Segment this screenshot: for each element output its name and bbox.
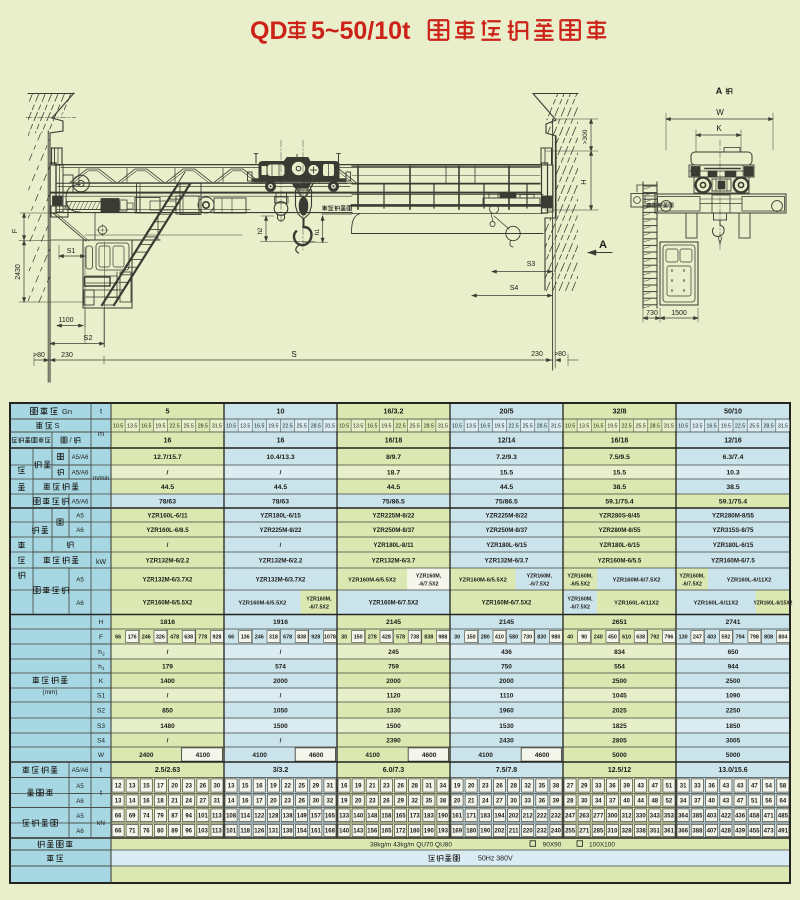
svg-text:31: 31 xyxy=(425,784,432,790)
svg-text:103: 103 xyxy=(198,829,209,835)
svg-text:161: 161 xyxy=(311,829,322,835)
svg-text:50/10: 50/10 xyxy=(724,407,742,416)
svg-text:н: н xyxy=(671,268,674,274)
svg-text:428: 428 xyxy=(721,829,732,835)
svg-text:16: 16 xyxy=(341,784,348,790)
svg-text:161: 161 xyxy=(452,814,463,820)
svg-text:37: 37 xyxy=(694,799,701,805)
svg-text:31.5: 31.5 xyxy=(551,424,561,430)
svg-text:278: 278 xyxy=(368,635,377,641)
svg-text:21: 21 xyxy=(468,799,475,805)
svg-text:246: 246 xyxy=(255,635,264,641)
svg-text:16/18: 16/18 xyxy=(385,438,403,445)
svg-text:35: 35 xyxy=(425,799,432,805)
svg-text:YZR160L-6/8.5: YZR160L-6/8.5 xyxy=(146,527,189,534)
svg-text:16.5: 16.5 xyxy=(593,424,603,430)
svg-text:S1: S1 xyxy=(67,248,76,255)
svg-text:403: 403 xyxy=(707,814,718,820)
svg-text:114: 114 xyxy=(240,814,250,820)
svg-text:34: 34 xyxy=(595,799,602,805)
svg-text:2805: 2805 xyxy=(612,738,627,745)
svg-text:36: 36 xyxy=(538,799,545,805)
svg-text:A5/A6: A5/A6 xyxy=(72,499,89,506)
svg-text:S2: S2 xyxy=(83,333,92,342)
svg-text:485: 485 xyxy=(778,814,789,820)
svg-text:/: / xyxy=(167,693,169,700)
svg-text:23: 23 xyxy=(284,799,291,805)
svg-text:988: 988 xyxy=(438,635,447,641)
svg-text:32/8: 32/8 xyxy=(613,407,627,416)
svg-text:79: 79 xyxy=(157,814,164,820)
svg-text:90: 90 xyxy=(581,635,587,641)
svg-text:478: 478 xyxy=(170,635,179,641)
svg-text:50Hz 380V: 50Hz 380V xyxy=(478,856,513,863)
svg-text:S3: S3 xyxy=(97,723,105,730)
svg-text:75/86.5: 75/86.5 xyxy=(495,499,518,506)
svg-text:2.5/2.63: 2.5/2.63 xyxy=(155,767,180,774)
svg-text:h2: h2 xyxy=(258,227,264,234)
svg-text:YZR132M-6/3.7: YZR132M-6/3.7 xyxy=(372,557,416,564)
svg-text:59.1/75.4: 59.1/75.4 xyxy=(719,499,748,506)
svg-text:66: 66 xyxy=(228,635,234,641)
svg-text:н: н xyxy=(671,288,674,294)
svg-text:31.5: 31.5 xyxy=(438,424,448,430)
svg-text:19.5: 19.5 xyxy=(494,424,504,430)
svg-text:3/3.2: 3/3.2 xyxy=(273,767,289,774)
svg-text:28.5: 28.5 xyxy=(764,424,774,430)
svg-text:7.2/9.3: 7.2/9.3 xyxy=(496,454,517,461)
svg-text:328: 328 xyxy=(622,829,633,835)
svg-text:578: 578 xyxy=(396,635,405,641)
svg-text:YZR160L-6/11X2: YZR160L-6/11X2 xyxy=(694,601,739,607)
svg-text:19.5: 19.5 xyxy=(268,424,278,430)
svg-text:1480: 1480 xyxy=(160,723,175,730)
svg-text:13.5: 13.5 xyxy=(579,424,589,430)
svg-text:16/3.2: 16/3.2 xyxy=(384,407,404,416)
svg-text:15: 15 xyxy=(143,784,150,790)
svg-text:28.5: 28.5 xyxy=(198,424,208,430)
svg-text:928: 928 xyxy=(311,635,320,641)
svg-text:2390: 2390 xyxy=(386,738,401,745)
svg-text:н: н xyxy=(683,278,686,284)
svg-text:>80: >80 xyxy=(33,352,45,359)
svg-text:/: / xyxy=(280,693,282,700)
svg-text:16: 16 xyxy=(164,438,172,445)
svg-text:30: 30 xyxy=(454,635,460,641)
svg-text:YZR180L-6/15: YZR180L-6/15 xyxy=(260,512,301,519)
svg-text:A: A xyxy=(599,239,607,251)
svg-text:28: 28 xyxy=(510,784,517,790)
svg-text:47: 47 xyxy=(751,784,758,790)
svg-text:15.5: 15.5 xyxy=(500,470,513,477)
svg-text:13: 13 xyxy=(228,784,235,790)
svg-text:190: 190 xyxy=(480,829,491,835)
svg-text:592: 592 xyxy=(721,635,730,641)
svg-text:W: W xyxy=(716,108,724,117)
svg-text:22.5: 22.5 xyxy=(622,424,632,430)
svg-text:678: 678 xyxy=(283,635,292,641)
svg-text:F: F xyxy=(10,228,19,233)
svg-text:40: 40 xyxy=(708,799,715,805)
svg-text:22.5: 22.5 xyxy=(735,424,745,430)
svg-text:87: 87 xyxy=(171,814,178,820)
svg-text:A6: A6 xyxy=(76,527,84,534)
svg-text:A5/A6: A5/A6 xyxy=(72,767,89,774)
svg-text:158: 158 xyxy=(381,814,392,820)
svg-text:16.5: 16.5 xyxy=(254,424,264,430)
svg-text:t: t xyxy=(100,767,102,774)
svg-text:A6: A6 xyxy=(76,828,84,835)
svg-text:40: 40 xyxy=(567,635,573,641)
svg-text:1045: 1045 xyxy=(612,693,627,700)
svg-text:183: 183 xyxy=(480,814,491,820)
svg-text:26: 26 xyxy=(298,799,305,805)
svg-text:580: 580 xyxy=(509,635,518,641)
svg-text:410: 410 xyxy=(495,635,504,641)
svg-text:10.5: 10.5 xyxy=(452,424,462,430)
svg-text:1850: 1850 xyxy=(726,723,741,730)
svg-text:t: t xyxy=(100,790,102,797)
svg-text:51: 51 xyxy=(751,799,758,805)
svg-text:10.5: 10.5 xyxy=(565,424,575,430)
svg-text:202: 202 xyxy=(509,814,520,820)
svg-text:10.5: 10.5 xyxy=(226,424,236,430)
svg-text:-6/7.5X2: -6/7.5X2 xyxy=(418,581,438,587)
svg-text:1100: 1100 xyxy=(58,317,73,324)
svg-text:439: 439 xyxy=(735,829,746,835)
svg-text:220: 220 xyxy=(523,829,534,835)
svg-text:138: 138 xyxy=(283,829,294,835)
svg-text:38: 38 xyxy=(553,784,560,790)
svg-text:169: 169 xyxy=(452,829,463,835)
svg-text:23: 23 xyxy=(185,784,192,790)
svg-text:YZR160M-6/5.5X2: YZR160M-6/5.5X2 xyxy=(459,577,507,583)
svg-text:28.5: 28.5 xyxy=(537,424,547,430)
svg-text:388: 388 xyxy=(692,829,703,835)
svg-text:1530: 1530 xyxy=(499,723,514,730)
svg-text:A5: A5 xyxy=(76,813,84,820)
svg-text:25.5: 25.5 xyxy=(523,424,533,430)
svg-text:38.5: 38.5 xyxy=(726,484,739,491)
svg-text:31: 31 xyxy=(327,784,334,790)
svg-text:271: 271 xyxy=(579,829,590,835)
svg-text:YZR160M-6/7.5X2: YZR160M-6/7.5X2 xyxy=(612,577,660,583)
svg-text:31.5: 31.5 xyxy=(664,424,674,430)
svg-text:m: m xyxy=(98,429,104,438)
svg-text:1960: 1960 xyxy=(499,708,514,715)
svg-text:230: 230 xyxy=(61,352,73,359)
svg-text:850: 850 xyxy=(162,708,173,715)
svg-text:96: 96 xyxy=(185,829,192,835)
svg-text:2250: 2250 xyxy=(726,708,741,715)
svg-text:759: 759 xyxy=(388,664,399,671)
svg-text:240: 240 xyxy=(551,829,562,835)
svg-text:38kg/m 43kg/m QU70 QU80: 38kg/m 43kg/m QU70 QU80 xyxy=(370,841,452,848)
svg-text:2430: 2430 xyxy=(499,738,514,745)
svg-text:S: S xyxy=(54,421,59,430)
svg-text:2500: 2500 xyxy=(612,678,627,685)
svg-text:39: 39 xyxy=(623,784,630,790)
svg-text:H: H xyxy=(579,179,588,184)
svg-text:165: 165 xyxy=(325,814,336,820)
svg-text:19.5: 19.5 xyxy=(155,424,165,430)
svg-text:554: 554 xyxy=(614,664,625,671)
svg-text:YZR250M-8/37: YZR250M-8/37 xyxy=(486,527,529,534)
svg-text:YZR225M-8/22: YZR225M-8/22 xyxy=(373,512,416,519)
svg-text:4600: 4600 xyxy=(535,752,550,759)
svg-text:165: 165 xyxy=(381,829,392,835)
svg-text:20: 20 xyxy=(468,784,475,790)
svg-text:YZR225M-8/22: YZR225M-8/22 xyxy=(260,527,303,534)
svg-text:13: 13 xyxy=(115,799,122,805)
svg-text:YZR160M-6/7.5X2: YZR160M-6/7.5X2 xyxy=(369,601,419,607)
svg-text:YZR160M,: YZR160M, xyxy=(416,573,442,579)
svg-text:52: 52 xyxy=(666,799,673,805)
svg-text:230: 230 xyxy=(531,351,543,358)
svg-text:/: / xyxy=(280,738,282,745)
svg-text:48: 48 xyxy=(651,799,658,805)
svg-text:32: 32 xyxy=(411,799,418,805)
svg-text:20: 20 xyxy=(355,799,362,805)
svg-text:19.5: 19.5 xyxy=(381,424,391,430)
svg-text:26: 26 xyxy=(397,784,404,790)
svg-text:н: н xyxy=(683,268,686,274)
svg-text:792: 792 xyxy=(650,635,659,641)
svg-text:473: 473 xyxy=(764,829,775,835)
svg-text:YZR132M-6/3.7X2: YZR132M-6/3.7X2 xyxy=(143,577,193,583)
svg-text:24: 24 xyxy=(185,799,192,805)
svg-text:428: 428 xyxy=(382,635,391,641)
svg-text:343: 343 xyxy=(650,814,661,820)
svg-text:280: 280 xyxy=(481,635,490,641)
svg-text:2430: 2430 xyxy=(15,264,22,280)
svg-text:165: 165 xyxy=(396,814,407,820)
svg-text:/: / xyxy=(167,738,169,745)
svg-text:16.5: 16.5 xyxy=(707,424,717,430)
svg-text:-6/5.5X2: -6/5.5X2 xyxy=(570,581,590,587)
svg-text:43: 43 xyxy=(737,784,744,790)
svg-text:36: 36 xyxy=(708,784,715,790)
svg-text:56: 56 xyxy=(765,799,772,805)
svg-text:638: 638 xyxy=(184,635,193,641)
svg-text:/: / xyxy=(167,649,169,656)
svg-text:89: 89 xyxy=(171,829,178,835)
svg-text:A5/A6: A5/A6 xyxy=(72,454,89,461)
svg-text:YZR160M,: YZR160M, xyxy=(306,597,332,603)
svg-text:353: 353 xyxy=(664,814,675,820)
svg-text:YZR160M,: YZR160M, xyxy=(567,597,593,603)
svg-text:13.5: 13.5 xyxy=(466,424,476,430)
svg-text:16: 16 xyxy=(143,799,150,805)
svg-text:1825: 1825 xyxy=(612,723,627,730)
svg-text:34: 34 xyxy=(680,799,687,805)
svg-text:29: 29 xyxy=(397,799,404,805)
svg-text:23: 23 xyxy=(383,784,390,790)
svg-text:10: 10 xyxy=(277,407,285,416)
svg-text:247: 247 xyxy=(693,635,702,641)
svg-text:m/min: m/min xyxy=(93,476,109,482)
svg-text:778: 778 xyxy=(198,635,207,641)
svg-text:202: 202 xyxy=(494,829,505,835)
svg-text:2000: 2000 xyxy=(386,678,401,685)
svg-text:23: 23 xyxy=(482,784,489,790)
svg-text:h1: h1 xyxy=(315,228,321,235)
svg-text:YZR132M-6/2.2: YZR132M-6/2.2 xyxy=(146,557,190,564)
svg-text:н: н xyxy=(671,278,674,284)
svg-text:39: 39 xyxy=(553,799,560,805)
svg-text:YZR280S-8/45: YZR280S-8/45 xyxy=(599,512,640,519)
svg-text:436: 436 xyxy=(735,814,746,820)
svg-text:-6/7.5X2: -6/7.5X2 xyxy=(309,605,329,611)
svg-text:YZR132M-6/3.7: YZR132M-6/3.7 xyxy=(485,557,529,564)
svg-text:YZR280M-8/55: YZR280M-8/55 xyxy=(712,512,755,519)
svg-text:471: 471 xyxy=(764,814,775,820)
svg-text:YZR160M,: YZR160M, xyxy=(527,573,553,579)
svg-text:730: 730 xyxy=(646,310,658,317)
svg-text:69: 69 xyxy=(129,814,136,820)
svg-text:19.5: 19.5 xyxy=(721,424,731,430)
svg-text:7.5/7.8: 7.5/7.8 xyxy=(496,767,518,774)
svg-text:A5: A5 xyxy=(76,577,84,584)
svg-text:22.5: 22.5 xyxy=(509,424,519,430)
svg-text:20: 20 xyxy=(454,799,461,805)
svg-text:66: 66 xyxy=(115,635,121,641)
svg-text:64: 64 xyxy=(780,799,787,805)
svg-text:59.1/75.4: 59.1/75.4 xyxy=(605,499,634,506)
svg-text:43: 43 xyxy=(723,784,730,790)
svg-text:YZR160L-6/11: YZR160L-6/11 xyxy=(147,512,188,519)
svg-text:130: 130 xyxy=(679,635,688,641)
svg-text:30: 30 xyxy=(510,799,517,805)
svg-text:19.5: 19.5 xyxy=(607,424,617,430)
svg-text:361: 361 xyxy=(664,829,675,835)
svg-text:5000: 5000 xyxy=(726,752,741,759)
svg-text:4100: 4100 xyxy=(478,752,493,759)
svg-text:300: 300 xyxy=(607,814,618,820)
svg-text:23: 23 xyxy=(369,799,376,805)
svg-text:13.5: 13.5 xyxy=(692,424,702,430)
svg-text:YZR132M-6/3.7X2: YZR132M-6/3.7X2 xyxy=(256,577,306,583)
svg-text:8/9.7: 8/9.7 xyxy=(386,454,401,461)
svg-text:750: 750 xyxy=(501,664,512,671)
svg-text:403: 403 xyxy=(707,635,716,641)
svg-text:26: 26 xyxy=(496,784,503,790)
svg-text:YZR160M-6/5.5: YZR160M-6/5.5 xyxy=(598,557,642,564)
svg-text:YZR160L-6/11X2: YZR160L-6/11X2 xyxy=(727,577,772,583)
svg-text:2145: 2145 xyxy=(499,619,514,626)
svg-text:1050: 1050 xyxy=(273,708,288,715)
svg-text:76: 76 xyxy=(143,829,150,835)
svg-text:2651: 2651 xyxy=(612,619,627,626)
svg-text:491: 491 xyxy=(778,829,789,835)
svg-text:A5: A5 xyxy=(76,513,84,520)
svg-text:122: 122 xyxy=(254,814,265,820)
svg-text:143: 143 xyxy=(353,829,364,835)
svg-text:180: 180 xyxy=(410,829,421,835)
svg-text:212: 212 xyxy=(523,814,534,820)
svg-text:16: 16 xyxy=(256,784,263,790)
svg-text:326: 326 xyxy=(156,635,165,641)
svg-text:168: 168 xyxy=(325,829,336,835)
svg-text:16.5: 16.5 xyxy=(141,424,151,430)
svg-text:12.7/15.7: 12.7/15.7 xyxy=(153,454,182,461)
svg-text:26: 26 xyxy=(199,784,206,790)
svg-text:12: 12 xyxy=(115,784,122,790)
svg-text:S4: S4 xyxy=(510,285,519,292)
svg-text:172: 172 xyxy=(396,829,407,835)
svg-text:2400: 2400 xyxy=(139,752,154,759)
svg-text:14: 14 xyxy=(129,799,136,805)
svg-text:7.5/9.5: 7.5/9.5 xyxy=(609,454,630,461)
svg-text:10.5: 10.5 xyxy=(339,424,349,430)
svg-text:16.5: 16.5 xyxy=(367,424,377,430)
svg-text:13.5: 13.5 xyxy=(127,424,137,430)
svg-text:574: 574 xyxy=(275,664,286,671)
svg-text:310: 310 xyxy=(607,829,618,835)
svg-text:838: 838 xyxy=(424,635,433,641)
svg-text:44.5: 44.5 xyxy=(274,484,287,491)
svg-text:78/63: 78/63 xyxy=(272,499,289,506)
svg-text:44: 44 xyxy=(637,799,644,805)
svg-text:25.5: 25.5 xyxy=(410,424,420,430)
svg-text:1120: 1120 xyxy=(386,693,400,700)
svg-text:/: / xyxy=(167,470,169,477)
svg-text:1916: 1916 xyxy=(273,619,288,626)
svg-text:150: 150 xyxy=(467,635,476,641)
svg-text:12/14: 12/14 xyxy=(498,438,516,445)
svg-text:A6: A6 xyxy=(76,600,84,607)
svg-text:2145: 2145 xyxy=(386,619,401,626)
svg-text:66: 66 xyxy=(115,829,122,835)
svg-text:18.7: 18.7 xyxy=(387,470,400,477)
svg-text:A5/A6: A5/A6 xyxy=(72,470,89,477)
svg-text:/: / xyxy=(280,649,282,656)
svg-text:364: 364 xyxy=(678,814,689,820)
svg-text:15.5: 15.5 xyxy=(613,470,626,477)
svg-text:YZR180L-8/11: YZR180L-8/11 xyxy=(373,542,414,549)
svg-text:A5: A5 xyxy=(76,783,84,790)
svg-text:610: 610 xyxy=(622,635,631,641)
svg-text:312: 312 xyxy=(622,814,633,820)
svg-text:157: 157 xyxy=(311,814,322,820)
svg-text:1110: 1110 xyxy=(500,693,514,700)
svg-text:2741: 2741 xyxy=(725,619,740,626)
svg-text:808: 808 xyxy=(764,635,773,641)
svg-text:YZR160M-6/7.5: YZR160M-6/7.5 xyxy=(711,557,755,564)
svg-text:YZR160M,: YZR160M, xyxy=(567,573,593,579)
svg-text:33: 33 xyxy=(595,784,602,790)
svg-text:/: / xyxy=(280,470,282,477)
svg-text:16: 16 xyxy=(277,438,285,445)
svg-text:277: 277 xyxy=(593,814,604,820)
svg-text:2500: 2500 xyxy=(726,678,741,685)
svg-text:30: 30 xyxy=(312,799,319,805)
svg-text:24: 24 xyxy=(482,799,489,805)
svg-text:156: 156 xyxy=(367,829,378,835)
svg-text:43: 43 xyxy=(723,799,730,805)
svg-text:149: 149 xyxy=(297,814,308,820)
svg-text:193: 193 xyxy=(438,829,449,835)
svg-text:H: H xyxy=(99,619,104,626)
svg-text:407: 407 xyxy=(707,829,718,835)
svg-text:18: 18 xyxy=(157,799,164,805)
svg-text:28: 28 xyxy=(567,799,574,805)
svg-text:22.5: 22.5 xyxy=(396,424,406,430)
svg-text:3005: 3005 xyxy=(726,738,741,745)
svg-text:kN: kN xyxy=(97,820,105,827)
svg-text:33: 33 xyxy=(524,799,531,805)
svg-text:66: 66 xyxy=(115,814,122,820)
